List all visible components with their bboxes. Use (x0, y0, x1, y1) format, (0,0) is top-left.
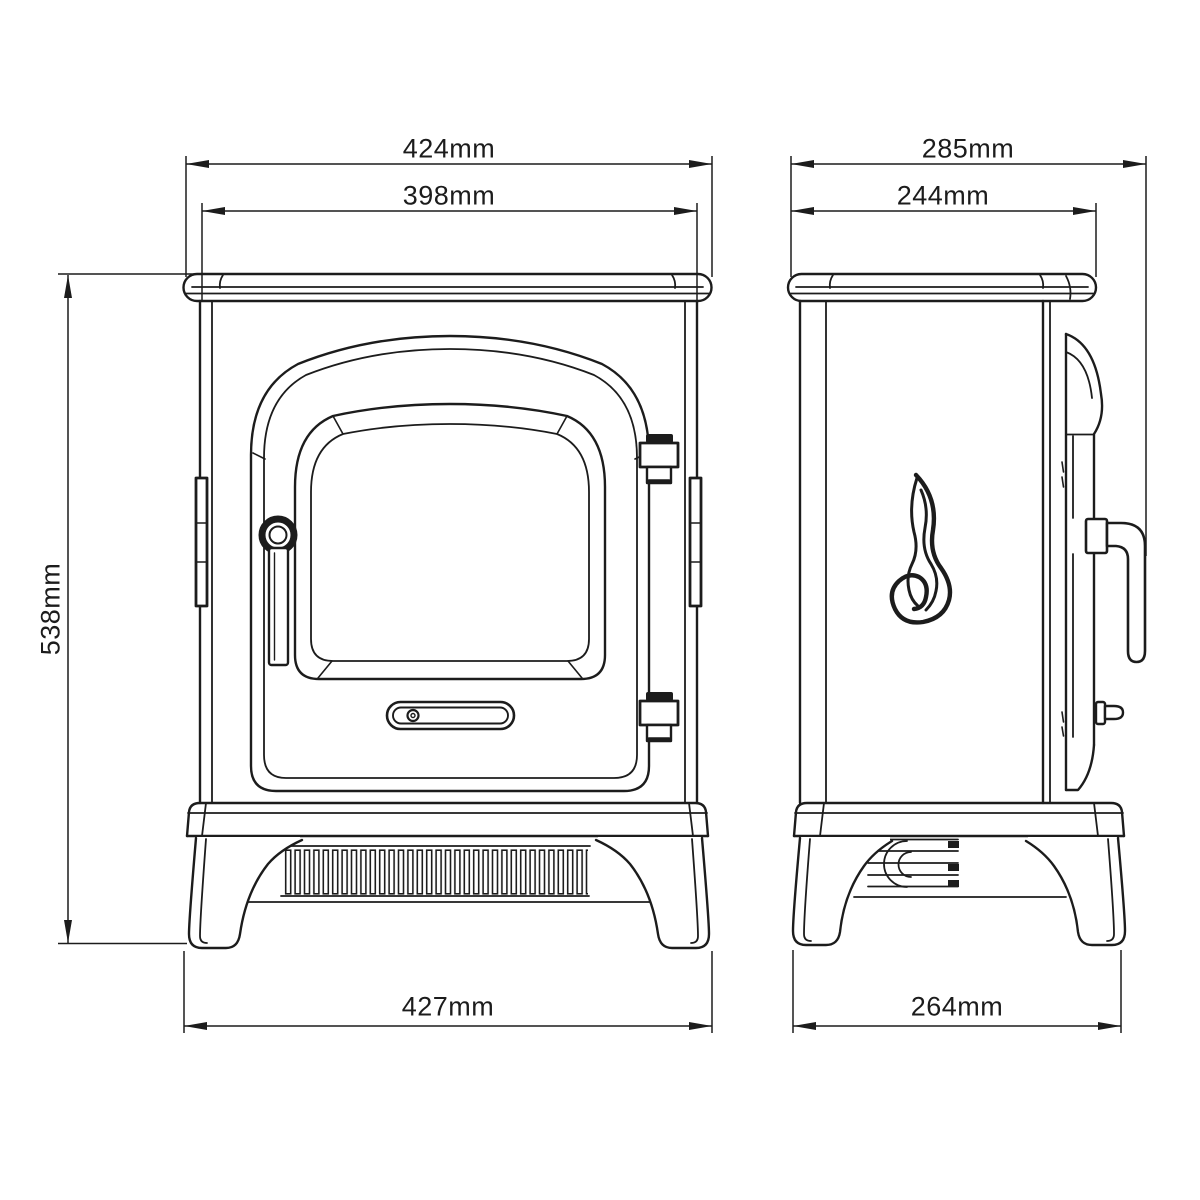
side-top-plate (788, 274, 1096, 301)
dim-label-front-overall-width: 424mm (403, 134, 496, 165)
control-knob (1096, 702, 1123, 724)
dim-label-side-body-depth: 244mm (897, 181, 990, 212)
front-top-plate (184, 274, 712, 301)
front-view-drawing (184, 274, 712, 948)
stove-technical-drawing (0, 0, 1200, 1200)
dim-label-front-body-width: 398mm (403, 181, 496, 212)
dim-label-front-base-width: 427mm (402, 992, 495, 1023)
side-front-leg (793, 837, 892, 945)
hinge-bottom (640, 692, 678, 741)
front-vent-grille (236, 846, 660, 902)
front-base-plinth (187, 803, 708, 836)
front-right-leg (596, 837, 709, 948)
hinge-top (640, 434, 678, 483)
technical-drawing-canvas: 424mm 398mm 538mm 427mm 285mm 244mm 264m… (0, 0, 1200, 1200)
door-window (295, 404, 605, 679)
dim-label-side-base-depth: 264mm (911, 992, 1004, 1023)
flame-icon (892, 475, 950, 622)
side-rear-leg (1026, 837, 1125, 945)
dim-label-side-overall-depth: 285mm (922, 134, 1015, 165)
air-vent-slot (387, 702, 514, 729)
side-vent-louvers (854, 840, 1066, 898)
side-view-drawing (788, 274, 1145, 945)
door-handle (262, 519, 294, 665)
dim-label-front-overall-height: 538mm (36, 563, 67, 656)
side-base-plinth (794, 803, 1124, 836)
